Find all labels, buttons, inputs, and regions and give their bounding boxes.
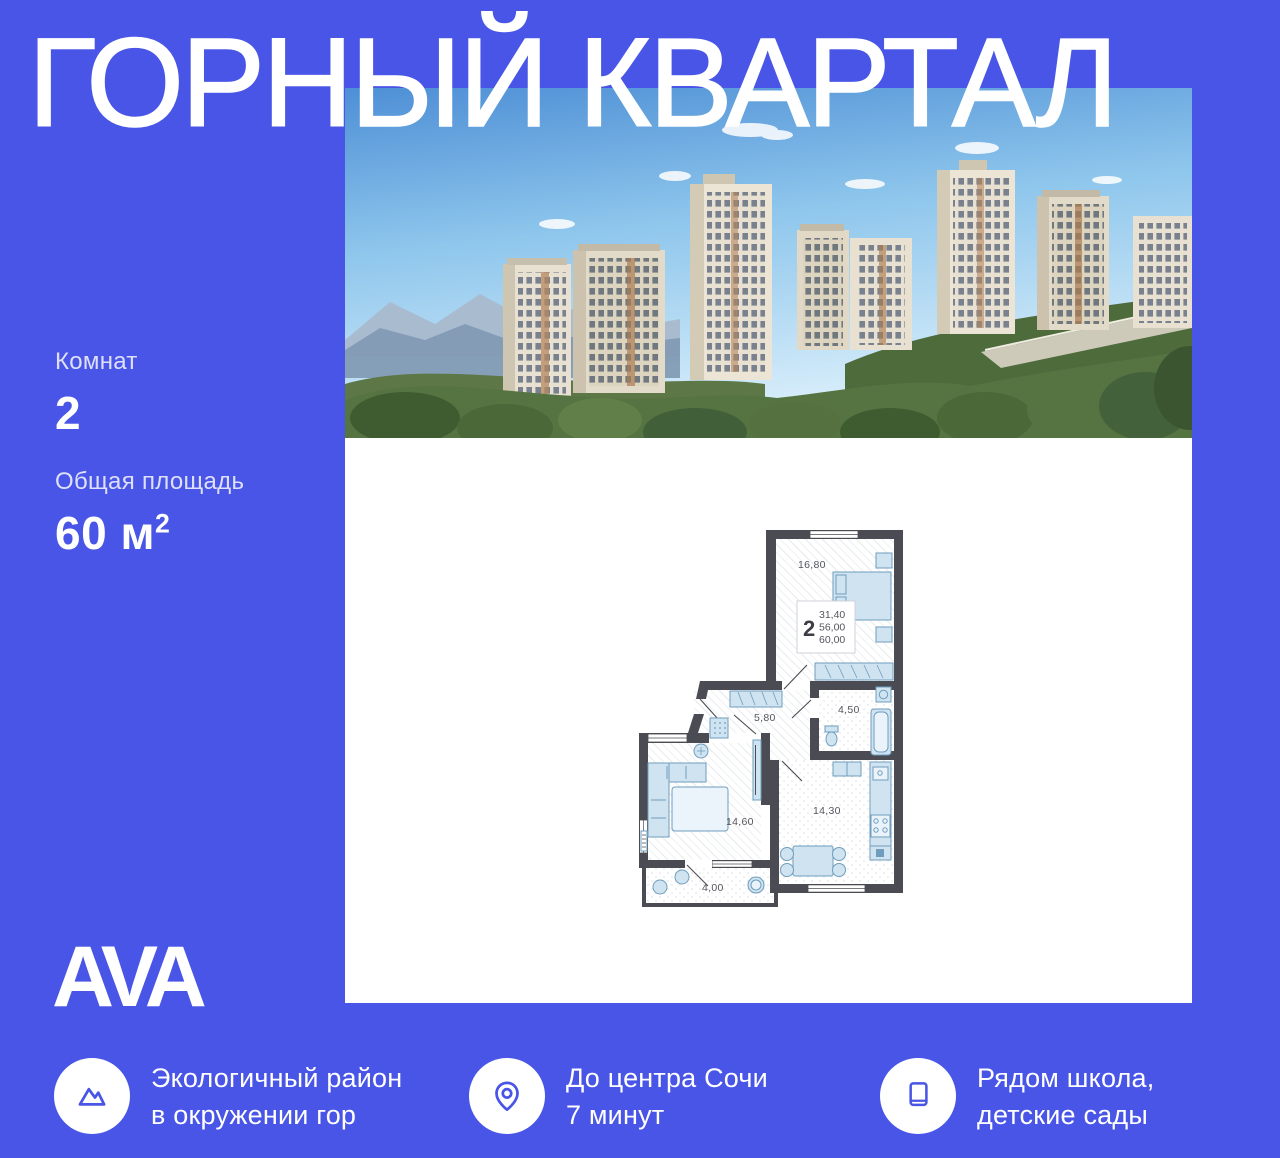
floorplan-drawing: 2 31,40 56,00 60,00 16,80 5,80 4,50 14,6…	[630, 515, 920, 915]
ava-logo: AVA	[52, 934, 200, 1020]
label-hallway-area: 5,80	[754, 712, 776, 724]
feature-school-text: Рядом школа, детские сады	[977, 1058, 1154, 1134]
ad-banner: ГОРНЫЙ КВАРТАЛ	[0, 0, 1280, 1158]
spec-area-superscript: 2	[155, 509, 170, 539]
spec-rooms: Комнат 2	[55, 348, 138, 440]
feature-school-line2: детские сады	[977, 1097, 1154, 1134]
label-bedroom-area: 16,80	[798, 559, 826, 571]
chair	[781, 864, 794, 877]
feature-eco-district: Экологичный район в окружении гор	[54, 1058, 402, 1134]
building-left-2	[573, 244, 665, 393]
feature-center-text: До центра Сочи 7 минут	[566, 1058, 768, 1134]
feature-school-line1: Рядом школа,	[977, 1060, 1154, 1097]
spec-area-label: Общая площадь	[55, 468, 244, 496]
toilet	[825, 726, 838, 732]
feature-eco-line1: Экологичный район	[151, 1060, 402, 1097]
plan-rooms-count: 2	[803, 616, 815, 641]
rug	[672, 787, 728, 831]
plan-living-area: 31,40	[819, 609, 845, 621]
building-tall-2	[937, 160, 1015, 334]
building-left-1	[503, 258, 571, 400]
building-center-tower	[690, 174, 772, 380]
building-mid-2	[850, 238, 912, 350]
dresser	[876, 553, 892, 568]
washing-machine	[876, 687, 891, 702]
balcony-chair	[653, 880, 667, 894]
feature-school: Рядом школа, детские сады	[880, 1058, 1154, 1134]
feature-eco-text: Экологичный район в окружении гор	[151, 1058, 402, 1134]
plan-total-area: 60,00	[819, 634, 845, 646]
plan-area-no-balcony: 56,00	[819, 622, 845, 634]
label-living-area: 14,60	[726, 816, 754, 828]
radiator	[641, 831, 647, 851]
feature-center-line1: До центра Сочи	[566, 1060, 768, 1097]
building-right-2	[1133, 216, 1192, 328]
page-title: ГОРНЫЙ КВАРТАЛ	[28, 20, 1115, 146]
floorplan-panel: 2 31,40 56,00 60,00 16,80 5,80 4,50 14,6…	[345, 438, 1192, 1003]
chair	[833, 864, 846, 877]
feature-eco-line2: в окружении гор	[151, 1097, 402, 1134]
chair	[833, 848, 846, 861]
book-icon	[880, 1058, 956, 1134]
label-kitchen-area: 14,30	[813, 805, 841, 817]
mountains-icon	[54, 1058, 130, 1134]
spec-rooms-value: 2	[55, 386, 138, 440]
building-mid-1	[797, 224, 849, 350]
label-balcony-area: 4,00	[702, 882, 724, 894]
label-bathroom-area: 4,50	[838, 704, 860, 716]
plan-info-card: 2 31,40 56,00 60,00	[797, 601, 855, 653]
wardrobe-hallway	[730, 691, 782, 707]
location-pin-icon	[469, 1058, 545, 1134]
chair	[781, 848, 794, 861]
feature-center-line2: 7 минут	[566, 1097, 768, 1134]
spec-area-number: 60 м	[55, 507, 155, 559]
spec-total-area: Общая площадь 60 м2	[55, 468, 244, 560]
dining-table	[793, 846, 833, 876]
spec-area-value: 60 м2	[55, 506, 244, 560]
balcony-chair	[675, 870, 689, 884]
spec-rooms-label: Комнат	[55, 348, 138, 376]
kitchen-sink	[873, 767, 888, 780]
building-right-1	[1037, 190, 1109, 330]
feature-city-center: До центра Сочи 7 минут	[469, 1058, 768, 1134]
stove	[871, 815, 890, 837]
tv-unit	[753, 740, 761, 800]
dresser-2	[876, 627, 892, 642]
